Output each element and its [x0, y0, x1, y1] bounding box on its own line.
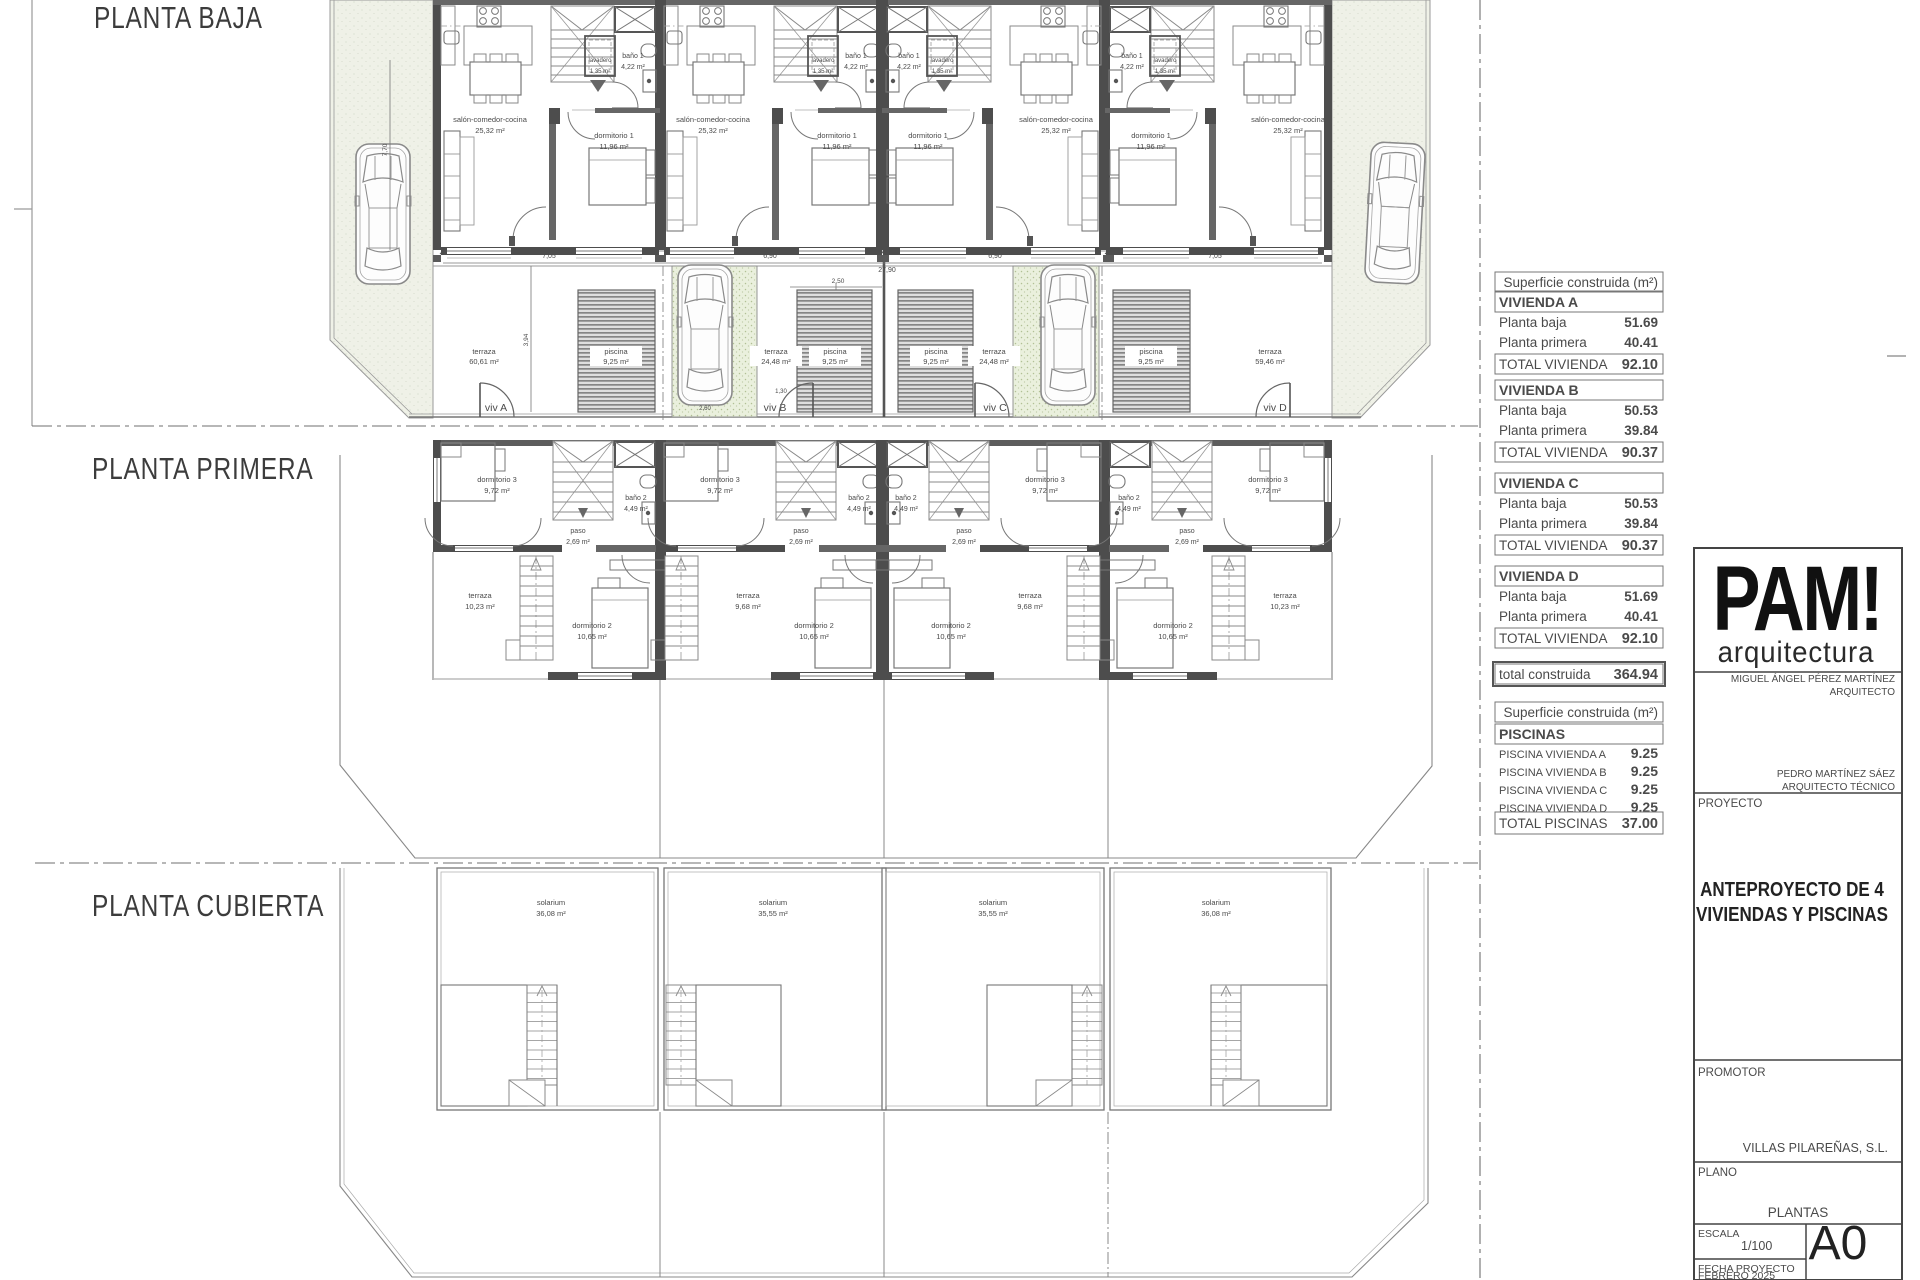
- svg-text:baño 1: baño 1: [622, 53, 644, 60]
- svg-text:ARQUITECTO: ARQUITECTO: [1830, 687, 1896, 698]
- svg-text:7,70: 7,70: [382, 143, 389, 156]
- svg-text:PISCINA VIVIENDA B: PISCINA VIVIENDA B: [1499, 767, 1607, 779]
- svg-text:PEDRO MARTÍNEZ SÁEZ: PEDRO MARTÍNEZ SÁEZ: [1777, 767, 1895, 780]
- svg-text:PISCINAS: PISCINAS: [1499, 726, 1565, 742]
- svg-text:25,32 m²: 25,32 m²: [698, 126, 728, 135]
- svg-text:viv C: viv C: [983, 402, 1007, 414]
- svg-text:Superficie construida (m²): Superficie construida (m²): [1503, 275, 1658, 290]
- svg-text:2,69 m²: 2,69 m²: [789, 539, 813, 546]
- svg-text:PLANO: PLANO: [1698, 1167, 1737, 1179]
- svg-text:PLANTA BAJA: PLANTA BAJA: [94, 0, 263, 34]
- svg-text:9,72 m²: 9,72 m²: [707, 486, 733, 495]
- svg-text:1,35 m²: 1,35 m²: [932, 69, 952, 75]
- svg-text:dormitorio 2: dormitorio 2: [1153, 621, 1193, 630]
- svg-text:VIVIENDA C: VIVIENDA C: [1499, 475, 1579, 491]
- svg-text:baño 2: baño 2: [1118, 495, 1140, 502]
- svg-text:11,96 m²: 11,96 m²: [1136, 142, 1166, 151]
- svg-text:piscina: piscina: [823, 347, 847, 356]
- svg-text:11,96 m²: 11,96 m²: [913, 142, 943, 151]
- svg-text:PISCINA VIVIENDA A: PISCINA VIVIENDA A: [1499, 749, 1607, 761]
- svg-text:2,69 m²: 2,69 m²: [952, 539, 976, 546]
- svg-text:solarium: solarium: [979, 898, 1007, 907]
- svg-text:piscina: piscina: [604, 347, 628, 356]
- svg-text:90.37: 90.37: [1622, 538, 1658, 554]
- svg-text:9,25 m²: 9,25 m²: [822, 357, 848, 366]
- svg-text:VIVIENDA A: VIVIENDA A: [1499, 294, 1578, 310]
- svg-text:Planta baja: Planta baja: [1499, 496, 1567, 511]
- svg-text:paso: paso: [570, 528, 585, 535]
- svg-text:9.25: 9.25: [1631, 745, 1658, 761]
- svg-text:Planta baja: Planta baja: [1499, 403, 1567, 418]
- svg-text:25,32 m²: 25,32 m²: [475, 126, 505, 135]
- svg-text:1,30: 1,30: [775, 389, 787, 395]
- svg-text:ESCALA: ESCALA: [1698, 1228, 1739, 1240]
- svg-text:dormitorio 3: dormitorio 3: [1025, 475, 1065, 484]
- svg-text:50.53: 50.53: [1624, 496, 1658, 511]
- svg-text:TOTAL VIVIENDA: TOTAL VIVIENDA: [1499, 538, 1608, 553]
- svg-text:Planta baja: Planta baja: [1499, 315, 1567, 330]
- svg-text:dormitorio 1: dormitorio 1: [1131, 131, 1171, 140]
- svg-text:terraza: terraza: [468, 591, 492, 600]
- svg-text:TOTAL VIVIENDA: TOTAL VIVIENDA: [1499, 357, 1608, 372]
- svg-text:VIVIENDAS Y PISCINAS: VIVIENDAS Y PISCINAS: [1696, 903, 1888, 926]
- svg-text:9,25 m²: 9,25 m²: [603, 357, 629, 366]
- svg-text:50.53: 50.53: [1624, 403, 1658, 418]
- svg-text:PLANTA PRIMERA: PLANTA PRIMERA: [92, 451, 313, 485]
- svg-text:Planta primera: Planta primera: [1499, 423, 1587, 438]
- svg-text:solarium: solarium: [1202, 898, 1230, 907]
- svg-text:baño 2: baño 2: [895, 495, 917, 502]
- svg-text:10,65 m²: 10,65 m²: [1158, 632, 1188, 641]
- svg-text:9,25 m²: 9,25 m²: [923, 357, 949, 366]
- svg-text:viv D: viv D: [1263, 402, 1287, 414]
- svg-text:90.37: 90.37: [1622, 445, 1658, 461]
- svg-text:FEBRERO 2025: FEBRERO 2025: [1698, 1270, 1775, 1280]
- svg-text:TOTAL VIVIENDA: TOTAL VIVIENDA: [1499, 631, 1608, 646]
- svg-text:9,72 m²: 9,72 m²: [1032, 486, 1058, 495]
- svg-text:ANTEPROYECTO DE 4: ANTEPROYECTO DE 4: [1700, 878, 1884, 901]
- svg-text:1,35 m²: 1,35 m²: [590, 69, 610, 75]
- svg-text:PROYECTO: PROYECTO: [1698, 798, 1762, 810]
- svg-text:dormitorio 3: dormitorio 3: [1248, 475, 1288, 484]
- svg-text:37.00: 37.00: [1622, 816, 1658, 832]
- svg-text:total construida: total construida: [1499, 667, 1591, 682]
- svg-text:51.69: 51.69: [1624, 589, 1658, 604]
- svg-text:viv B: viv B: [764, 402, 787, 414]
- svg-text:terraza: terraza: [764, 347, 788, 356]
- svg-text:Planta baja: Planta baja: [1499, 589, 1567, 604]
- svg-text:9,72 m²: 9,72 m²: [484, 486, 510, 495]
- svg-text:59,46 m²: 59,46 m²: [1255, 357, 1285, 366]
- svg-text:39.84: 39.84: [1624, 423, 1658, 438]
- svg-text:salón-comedor-cocina: salón-comedor-cocina: [453, 115, 528, 124]
- svg-text:1,35 m²: 1,35 m²: [1155, 69, 1175, 75]
- svg-text:9,68 m²: 9,68 m²: [735, 602, 761, 611]
- svg-text:salón-comedor-cocina: salón-comedor-cocina: [1019, 115, 1094, 124]
- svg-text:baño 1: baño 1: [1121, 53, 1143, 60]
- svg-text:2,69 m²: 2,69 m²: [566, 539, 590, 546]
- svg-text:4,49 m²: 4,49 m²: [894, 506, 918, 513]
- svg-text:dormitorio 2: dormitorio 2: [931, 621, 971, 630]
- svg-text:4,49 m²: 4,49 m²: [624, 506, 648, 513]
- svg-text:solarium: solarium: [759, 898, 787, 907]
- svg-text:4,22 m²: 4,22 m²: [621, 64, 645, 71]
- svg-text:lavadero: lavadero: [811, 58, 835, 64]
- svg-text:51.69: 51.69: [1624, 315, 1658, 330]
- svg-text:Planta primera: Planta primera: [1499, 609, 1587, 624]
- svg-text:92.10: 92.10: [1622, 631, 1658, 647]
- svg-text:dormitorio 3: dormitorio 3: [700, 475, 740, 484]
- svg-text:baño 2: baño 2: [848, 495, 870, 502]
- svg-text:dormitorio 3: dormitorio 3: [477, 475, 517, 484]
- svg-text:lavadero: lavadero: [1153, 58, 1177, 64]
- svg-text:9.25: 9.25: [1631, 781, 1658, 797]
- svg-text:solarium: solarium: [537, 898, 565, 907]
- svg-text:40.41: 40.41: [1624, 335, 1658, 350]
- svg-text:2,69 m²: 2,69 m²: [1175, 539, 1199, 546]
- svg-text:2,60: 2,60: [699, 406, 711, 412]
- svg-text:TOTAL VIVIENDA: TOTAL VIVIENDA: [1499, 445, 1608, 460]
- svg-text:24,48 m²: 24,48 m²: [979, 357, 1009, 366]
- svg-text:9,25 m²: 9,25 m²: [1138, 357, 1164, 366]
- svg-text:2,50: 2,50: [832, 278, 845, 285]
- svg-text:PLANTA CUBIERTA: PLANTA CUBIERTA: [92, 888, 324, 922]
- svg-text:40.41: 40.41: [1624, 609, 1658, 624]
- svg-text:4,49 m²: 4,49 m²: [1117, 506, 1141, 513]
- svg-text:39.84: 39.84: [1624, 516, 1658, 531]
- svg-text:PROMOTOR: PROMOTOR: [1698, 1067, 1766, 1079]
- svg-text:A0: A0: [1809, 1217, 1868, 1270]
- svg-text:lavadero: lavadero: [588, 58, 612, 64]
- svg-text:11,96 m²: 11,96 m²: [599, 142, 629, 151]
- svg-text:TOTAL PISCINAS: TOTAL PISCINAS: [1499, 816, 1608, 831]
- svg-text:35,55 m²: 35,55 m²: [978, 909, 1008, 918]
- svg-text:piscina: piscina: [924, 347, 948, 356]
- svg-text:dormitorio 1: dormitorio 1: [817, 131, 857, 140]
- svg-text:salón-comedor-cocina: salón-comedor-cocina: [1251, 115, 1326, 124]
- svg-text:ARQUITECTO TÉCNICO: ARQUITECTO TÉCNICO: [1782, 780, 1895, 793]
- svg-text:1,35 m²: 1,35 m²: [813, 69, 833, 75]
- svg-text:dormitorio 2: dormitorio 2: [572, 621, 612, 630]
- svg-text:salón-comedor-cocina: salón-comedor-cocina: [676, 115, 751, 124]
- svg-text:36,08 m²: 36,08 m²: [536, 909, 566, 918]
- svg-text:lavadero: lavadero: [930, 58, 954, 64]
- svg-text:92.10: 92.10: [1622, 357, 1658, 373]
- svg-text:4,22 m²: 4,22 m²: [897, 64, 921, 71]
- svg-text:baño 2: baño 2: [625, 495, 647, 502]
- svg-text:PISCINA VIVIENDA C: PISCINA VIVIENDA C: [1499, 785, 1607, 797]
- svg-text:dormitorio 1: dormitorio 1: [908, 131, 948, 140]
- svg-text:terraza: terraza: [982, 347, 1006, 356]
- svg-text:terraza: terraza: [736, 591, 760, 600]
- svg-text:Planta primera: Planta primera: [1499, 335, 1587, 350]
- svg-text:1/100: 1/100: [1741, 1239, 1772, 1253]
- svg-text:10,23 m²: 10,23 m²: [1270, 602, 1300, 611]
- svg-text:arquitectura: arquitectura: [1718, 636, 1875, 669]
- svg-text:24,48 m²: 24,48 m²: [761, 357, 791, 366]
- svg-text:25,32 m²: 25,32 m²: [1041, 126, 1071, 135]
- svg-text:terraza: terraza: [1018, 591, 1042, 600]
- svg-text:dormitorio 2: dormitorio 2: [794, 621, 834, 630]
- svg-text:60,61 m²: 60,61 m²: [469, 357, 499, 366]
- svg-text:3,94: 3,94: [523, 333, 530, 346]
- svg-text:terraza: terraza: [472, 347, 496, 356]
- svg-text:baño 1: baño 1: [898, 53, 920, 60]
- svg-text:4,22 m²: 4,22 m²: [844, 64, 868, 71]
- svg-text:VIVIENDA D: VIVIENDA D: [1499, 568, 1579, 584]
- svg-text:27,90: 27,90: [878, 267, 896, 274]
- svg-text:terraza: terraza: [1273, 591, 1297, 600]
- svg-text:VIVIENDA B: VIVIENDA B: [1499, 382, 1579, 398]
- svg-text:9.25: 9.25: [1631, 763, 1658, 779]
- svg-text:4,49 m²: 4,49 m²: [847, 506, 871, 513]
- svg-text:paso: paso: [793, 528, 808, 535]
- svg-text:VILLAS PILAREÑAS, S.L.: VILLAS PILAREÑAS, S.L.: [1743, 1141, 1888, 1155]
- svg-text:PISCINA VIVIENDA D: PISCINA VIVIENDA D: [1499, 803, 1607, 815]
- svg-text:4,22 m²: 4,22 m²: [1120, 64, 1144, 71]
- svg-text:baño 1: baño 1: [845, 53, 867, 60]
- svg-text:9.25: 9.25: [1631, 799, 1658, 815]
- svg-text:10,65 m²: 10,65 m²: [577, 632, 607, 641]
- svg-text:364.94: 364.94: [1614, 667, 1658, 683]
- svg-text:9,72 m²: 9,72 m²: [1255, 486, 1281, 495]
- svg-text:paso: paso: [956, 528, 971, 535]
- svg-text:Superficie construida (m²): Superficie construida (m²): [1503, 705, 1658, 720]
- svg-text:PAM!: PAM!: [1713, 547, 1882, 650]
- svg-text:paso: paso: [1179, 528, 1194, 535]
- svg-text:piscina: piscina: [1139, 347, 1163, 356]
- svg-text:10,65 m²: 10,65 m²: [936, 632, 966, 641]
- svg-text:Planta primera: Planta primera: [1499, 516, 1587, 531]
- svg-text:35,55 m²: 35,55 m²: [758, 909, 788, 918]
- svg-text:25,32 m²: 25,32 m²: [1273, 126, 1303, 135]
- svg-text:terraza: terraza: [1258, 347, 1282, 356]
- svg-text:10,23 m²: 10,23 m²: [465, 602, 495, 611]
- svg-text:9,68 m²: 9,68 m²: [1017, 602, 1043, 611]
- svg-text:dormitorio 1: dormitorio 1: [594, 131, 634, 140]
- svg-text:10,65 m²: 10,65 m²: [799, 632, 829, 641]
- svg-text:MIGUEL ÁNGEL PÉREZ MARTÍNEZ: MIGUEL ÁNGEL PÉREZ MARTÍNEZ: [1731, 672, 1895, 685]
- svg-text:viv A: viv A: [485, 402, 507, 414]
- svg-text:11,96 m²: 11,96 m²: [822, 142, 852, 151]
- svg-text:36,08 m²: 36,08 m²: [1201, 909, 1231, 918]
